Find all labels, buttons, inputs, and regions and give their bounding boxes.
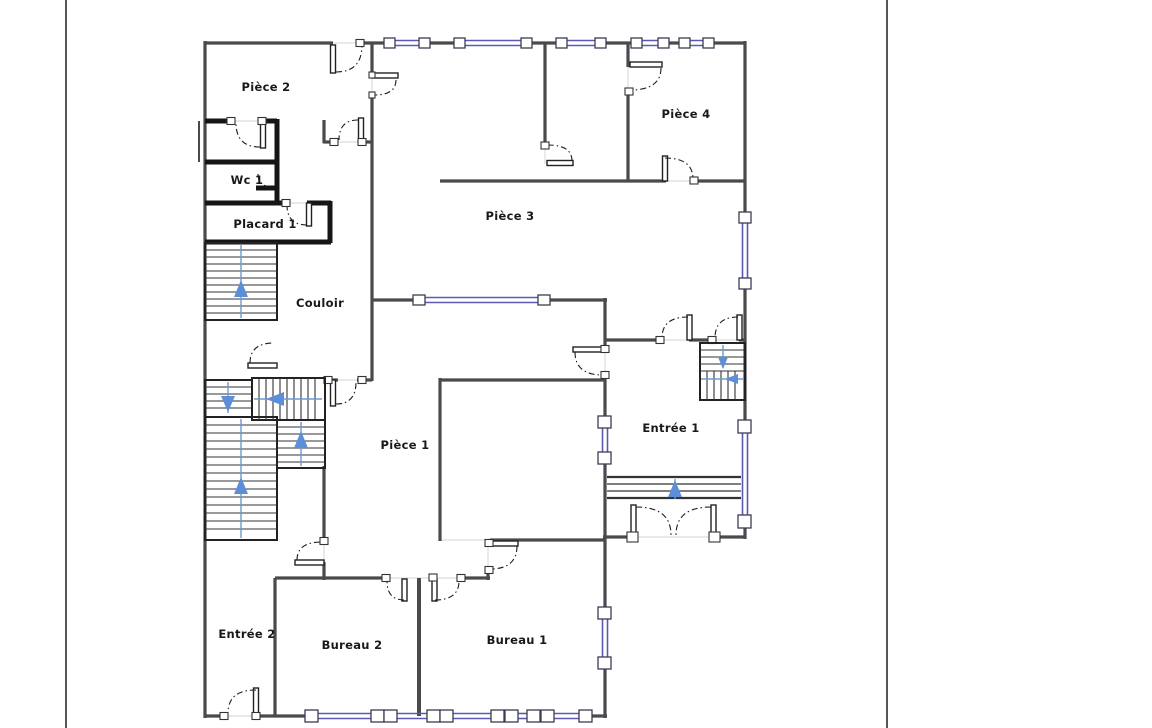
room-label-entree-2: Entrée 2 — [218, 627, 275, 641]
floor-plan-drawing — [0, 0, 1152, 728]
door — [387, 579, 407, 601]
door — [248, 343, 277, 368]
stair-arrow-up-icon — [668, 480, 682, 497]
staircase-upper-left — [205, 243, 277, 320]
window — [743, 222, 748, 279]
stair-arrow-down-icon — [221, 396, 235, 412]
entry-steps — [607, 477, 741, 499]
door — [372, 73, 398, 95]
room-label-couloir: Couloir — [296, 296, 344, 310]
room-label-piece-4: Pièce 4 — [662, 107, 711, 121]
door — [573, 347, 605, 375]
window — [316, 714, 372, 719]
staircase-mid-left — [205, 378, 325, 468]
door — [228, 688, 259, 716]
door — [630, 62, 662, 90]
door — [432, 579, 459, 601]
stair-arrow-down-icon — [718, 357, 728, 369]
room-label-piece-3: Pièce 3 — [486, 209, 535, 223]
door — [490, 541, 518, 569]
door — [331, 45, 363, 73]
room-label-bureau-1: Bureau 1 — [487, 633, 548, 647]
stair-arrow-up-icon — [234, 280, 248, 297]
window — [425, 298, 538, 303]
room-label-piece-1: Pièce 1 — [381, 438, 430, 452]
stair-arrow-left-icon — [725, 374, 738, 384]
door — [236, 123, 266, 148]
window — [603, 619, 608, 658]
room-label-bureau-2: Bureau 2 — [322, 638, 383, 652]
window — [743, 432, 748, 516]
room-label-piece-2: Pièce 2 — [242, 80, 291, 94]
door — [663, 156, 694, 181]
double-door — [631, 505, 716, 537]
door — [295, 542, 324, 565]
staircase-lower-left — [205, 417, 277, 540]
door — [662, 315, 692, 340]
window — [460, 41, 527, 46]
room-label-entree-1: Entrée 1 — [642, 421, 699, 435]
room-label-wc-1: Wc 1 — [231, 173, 264, 187]
staircase-entree-1 — [700, 343, 745, 400]
door — [547, 145, 573, 166]
window — [603, 427, 608, 453]
door — [331, 380, 357, 406]
door — [715, 315, 742, 340]
room-label-placard-1: Placard 1 — [233, 217, 296, 231]
stair-arrow-left-icon — [266, 392, 284, 406]
page: Pièce 2 Wc 1 Placard 1 Couloir Pièce 3 P… — [0, 0, 1152, 728]
stair-arrow-up-icon — [234, 477, 248, 494]
